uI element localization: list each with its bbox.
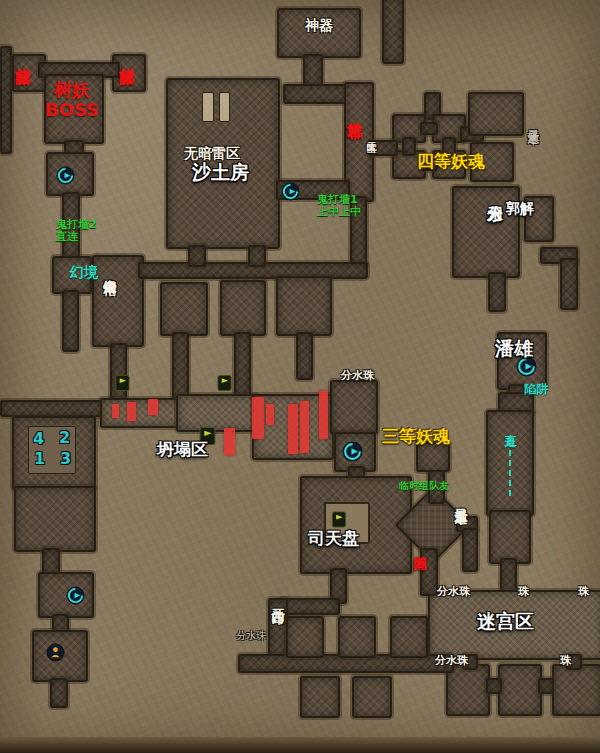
map-wall — [0, 46, 12, 154]
label-seek-demon-book-bottom: 寻妖通本 — [453, 498, 468, 502]
map-corridor — [538, 678, 554, 694]
label-ghost-wall-1: 鬼打墙1 上中上中 — [317, 194, 361, 219]
map-corridor — [248, 245, 266, 267]
map-corridor — [50, 678, 68, 708]
label-gold-silver-coffin: 金银铜棺 — [102, 269, 117, 273]
label-zhu-jiuyin: 烛九阴 — [412, 545, 427, 548]
portal-icon — [66, 586, 85, 605]
map-corridor — [188, 245, 206, 267]
map-room — [552, 664, 600, 716]
map-corridor — [172, 332, 189, 402]
label-burn-vine-left: 烧树藤 — [14, 56, 31, 59]
portal-icon — [56, 166, 75, 185]
label-pan-xiong: 潘雄 — [495, 338, 533, 359]
map-corridor — [0, 400, 109, 417]
map-corridor — [296, 332, 313, 380]
label-open-door-seal: 开门古印 — [270, 598, 285, 602]
map-collapse-area — [176, 394, 258, 432]
label-water-pearl-maze-bottom: 分水珠 — [435, 655, 468, 667]
map-corridor — [368, 140, 398, 156]
map-corridor — [402, 137, 416, 156]
map-corridor — [486, 678, 502, 694]
label-illusion: 幻境 — [70, 265, 98, 281]
map-room — [220, 280, 266, 336]
map-room — [276, 276, 332, 336]
danger-marker — [300, 401, 309, 453]
label-sand-room: 沙土房 — [192, 162, 249, 183]
label-water-pearl-bottom: 分水珠 — [236, 630, 266, 641]
quest-flag-icon — [331, 511, 347, 528]
door-slot — [219, 92, 230, 122]
label-sky-plate: 司天盘 — [308, 529, 359, 548]
danger-marker — [224, 428, 235, 455]
label-temp-teammate: 临时组队友 — [399, 480, 449, 491]
map-bottom-edge — [0, 737, 600, 753]
go-straight-arrow — [509, 450, 511, 496]
label-peerless-general: 绝世将军 — [346, 110, 363, 114]
map-corridor — [420, 122, 438, 135]
portal-icon — [342, 441, 363, 462]
map-corridor — [462, 528, 478, 572]
label-artifact: 神器 — [296, 18, 342, 34]
map-corridor — [268, 598, 288, 660]
label-pearl-b: 珠 — [578, 586, 589, 598]
label-trap: 陷阱 — [524, 383, 548, 396]
danger-marker — [148, 399, 158, 415]
danger-marker — [127, 402, 136, 421]
npc-exit-icon — [46, 643, 65, 662]
label-maze-zone: 迷宫区 — [477, 611, 534, 632]
map-corridor — [234, 332, 251, 399]
label-pearl-c: 珠 — [560, 655, 571, 667]
label-number-2: 2 — [59, 429, 70, 447]
danger-marker — [112, 404, 119, 418]
label-water-pearl-maze-top: 分水珠 — [437, 586, 470, 598]
label-seek-demon-book-top: 寻妖通本 — [526, 120, 539, 124]
map-room — [300, 676, 340, 718]
label-collapse-zone: 坍塌区 — [157, 440, 208, 459]
door-slot — [202, 92, 214, 122]
map-room — [338, 616, 376, 658]
map-room — [498, 664, 542, 716]
map-room — [286, 616, 324, 658]
map-room — [352, 676, 392, 718]
map-room — [390, 616, 428, 658]
map-room — [489, 510, 531, 564]
map-corridor — [488, 272, 506, 312]
map-room — [468, 92, 524, 136]
label-no-mine-zone: 无暗雷区 — [184, 146, 240, 162]
quest-flag-icon — [115, 374, 130, 392]
quest-flag-icon — [217, 374, 232, 392]
label-grade3-soul: 三等妖魂 — [382, 427, 450, 446]
label-ghost-wall-2: 鬼打墙2 直连 — [56, 219, 97, 244]
map-room — [416, 442, 450, 472]
map-wall — [382, 0, 404, 64]
map-room — [14, 486, 96, 552]
label-number-4: 4 — [33, 430, 44, 448]
map-room — [160, 282, 208, 336]
label-water-pearl-mid: 分水珠 — [341, 370, 374, 382]
map-room — [330, 380, 378, 434]
label-number-3: 3 — [60, 450, 71, 468]
map-corridor — [420, 548, 438, 596]
dungeon-map: 神器 树妖 BOSS 烧树藤 烧树藤 无暗雷区 沙土房 绝世将军 无暗雷区 鬼打… — [0, 0, 600, 753]
map-corridor — [280, 598, 340, 615]
label-no-mine-zone-small: 无暗雷区 — [366, 133, 377, 137]
label-guo-jie: 郭解 — [506, 201, 534, 217]
label-burn-vine-right: 烧树藤 — [118, 56, 135, 59]
map-corridor — [62, 290, 79, 352]
map-corridor — [283, 84, 351, 104]
map-room-coffin — [92, 255, 144, 347]
danger-marker — [288, 404, 298, 454]
map-corridor — [303, 54, 323, 88]
label-number-1: 1 — [34, 450, 45, 468]
label-grade4-soul: 四等妖魂 — [417, 152, 485, 171]
portal-icon — [281, 182, 300, 201]
danger-marker — [319, 391, 328, 439]
danger-marker — [266, 404, 274, 425]
label-go-straight: 直走 — [503, 424, 516, 426]
map-corridor — [560, 258, 578, 310]
label-water-blade: 分水刀 — [486, 192, 504, 195]
label-tree-boss: 树妖 BOSS — [40, 80, 104, 120]
label-pearl-a: 珠 — [518, 586, 529, 598]
danger-marker — [252, 397, 264, 439]
